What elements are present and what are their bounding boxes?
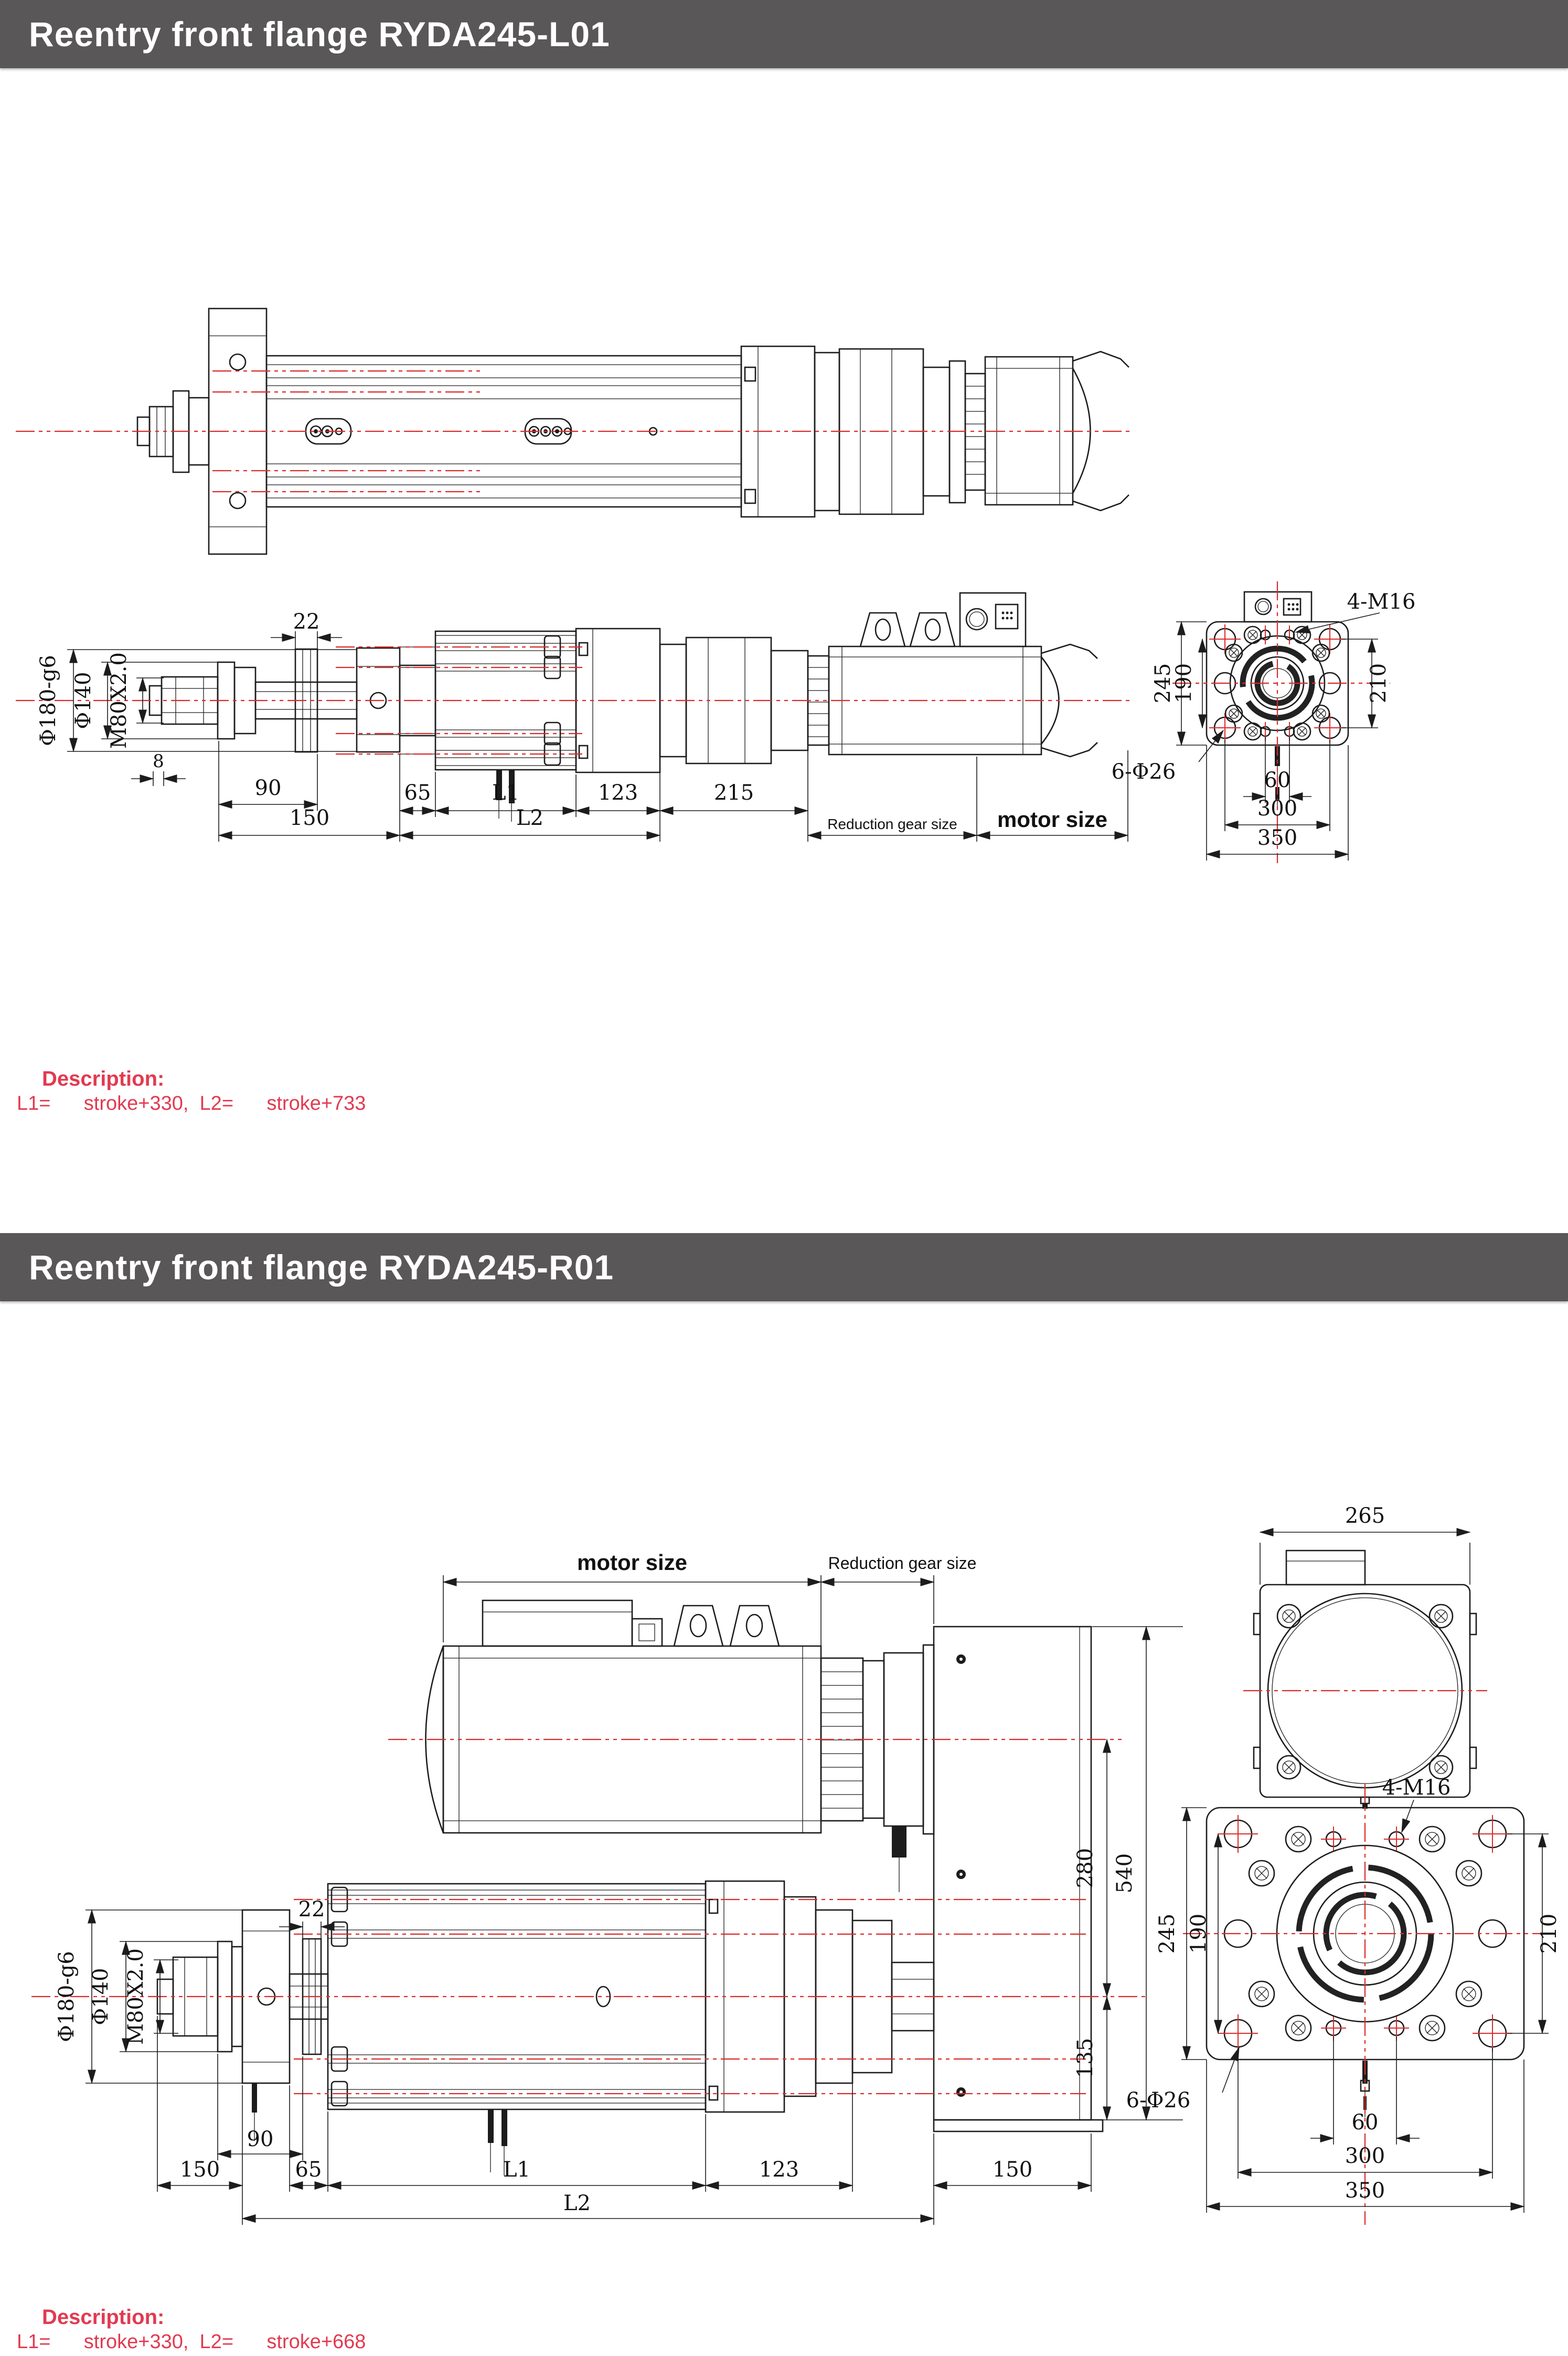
dim-65: 65 [404, 781, 431, 805]
dim-60: 60 [1352, 2110, 1379, 2135]
motor-body [829, 593, 1097, 757]
dim-190: 190 [1172, 663, 1196, 703]
lifting-lug [910, 613, 955, 646]
dim-phi180: Φ180-g6 [55, 1951, 79, 2042]
connector-box [960, 593, 1026, 646]
dim-215: 215 [714, 781, 754, 805]
dimensions: 22 Φ180-g6 Φ140 M80X2.0 8 90 [36, 610, 1128, 842]
dim-245: 245 [1155, 1914, 1179, 1954]
motor-body [426, 1600, 934, 1892]
dim-210: 210 [1367, 663, 1391, 703]
dim-6phi26: 6-Φ26 [1112, 760, 1176, 784]
dim-300: 300 [1345, 2144, 1385, 2168]
dim-280: 280 [1073, 1848, 1097, 1888]
lifting-lug [860, 613, 905, 646]
dim-90: 90 [255, 776, 282, 800]
dim-phi180: Φ180-g6 [36, 655, 60, 746]
dim-L2: L2 [563, 2191, 591, 2215]
r01-motor-rear-view: 265 [1243, 1504, 1487, 1809]
description-block-l01: Description: L1= stroke+330, L2= stroke+… [17, 1066, 366, 1116]
stroke-formula-l01: L1= stroke+330, L2= stroke+733 [17, 1091, 366, 1116]
dim-L1: L1 [492, 781, 519, 805]
description-label: Description: [42, 1066, 366, 1091]
description-label: Description: [42, 2305, 366, 2330]
dim-22: 22 [298, 1897, 325, 1922]
dim-135: 135 [1073, 2038, 1097, 2078]
corner-screws [1277, 1605, 1453, 1779]
dim-350: 350 [1257, 826, 1297, 850]
dim-4M16: 4-M16 [1347, 590, 1416, 614]
dim-265: 265 [1345, 1504, 1385, 1528]
dim-L2: L2 [516, 806, 543, 830]
connector-box [1286, 1551, 1365, 1585]
position-sensors [252, 2083, 507, 2175]
dim-150-right: 150 [993, 2158, 1032, 2182]
technical-drawings: 22 Φ180-g6 Φ140 M80X2.0 8 90 [0, 0, 1568, 2356]
dim-123: 123 [759, 2158, 799, 2182]
dim-4M16: 4-M16 [1382, 1776, 1451, 1800]
label-reduction-gear-size: Reduction gear size [827, 816, 957, 832]
label-motor-size: motor size [577, 1550, 687, 1575]
dim-150-left: 150 [180, 2158, 220, 2182]
dim-65: 65 [295, 2158, 322, 2182]
catalog-page: Reentry front flange RYDA245-L01 Reentry… [0, 0, 1568, 2356]
stroke-formula-r01: L1= stroke+330, L2= stroke+668 [17, 2330, 366, 2354]
dim-m80: M80X2.0 [107, 652, 131, 749]
label-reduction-gear-size: Reduction gear size [828, 1554, 977, 1573]
dim-150: 150 [290, 806, 329, 830]
dimensions: motor size Reduction gear size 22 Φ180-g… [55, 1550, 1183, 2225]
dim-phi140: Φ140 [89, 1968, 113, 2025]
dim-L1: L1 [503, 2158, 530, 2182]
dim-8: 8 [153, 751, 164, 772]
l01-plain-side-view [16, 309, 1133, 554]
dim-22: 22 [293, 610, 320, 634]
dim-m80: M80X2.0 [124, 1948, 148, 2045]
connector-box [483, 1600, 662, 1646]
label-motor-size: motor size [997, 807, 1107, 832]
l01-flange-end-view: 4-M16 6-Φ26 245 190 210 60 300 350 [1112, 581, 1416, 863]
dim-190: 190 [1187, 1914, 1211, 1954]
dim-210: 210 [1537, 1914, 1561, 1954]
l01-dimensioned-side-view: 22 Φ180-g6 Φ140 M80X2.0 8 90 [16, 593, 1133, 842]
dim-90: 90 [247, 2127, 274, 2151]
dim-350: 350 [1345, 2179, 1385, 2203]
r01-dimensioned-side-view: motor size Reduction gear size 22 Φ180-g… [31, 1550, 1183, 2225]
dim-300: 300 [1257, 797, 1297, 821]
lifting-lug [730, 1606, 779, 1646]
description-block-r01: Description: L1= stroke+330, L2= stroke+… [17, 2305, 366, 2354]
dim-60: 60 [1264, 768, 1291, 792]
lifting-lug [674, 1606, 723, 1646]
dim-540: 540 [1113, 1853, 1137, 1893]
dim-phi140: Φ140 [71, 672, 95, 729]
r01-flange-end-view: 4-M16 6-Φ26 245 190 210 60 300 350 [1126, 1776, 1561, 2225]
dim-123: 123 [598, 781, 638, 805]
dim-6phi26: 6-Φ26 [1126, 2088, 1191, 2113]
